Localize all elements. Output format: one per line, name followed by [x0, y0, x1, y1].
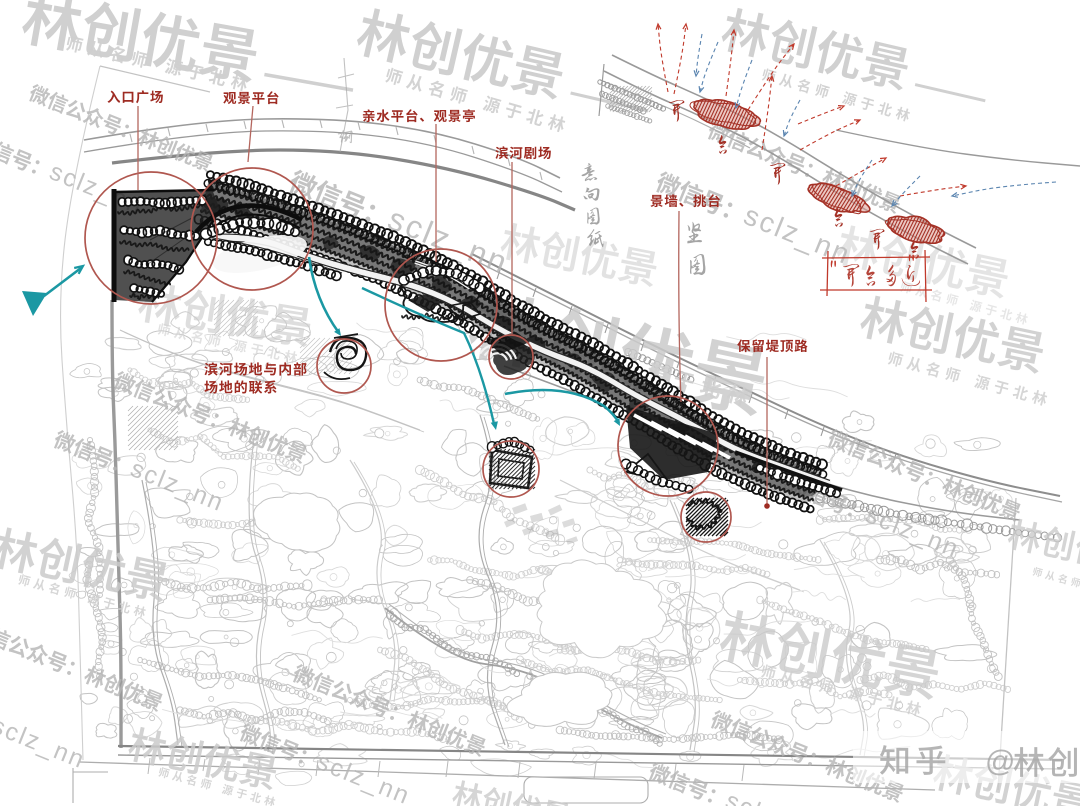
svg-text:@: @ [985, 745, 1015, 778]
